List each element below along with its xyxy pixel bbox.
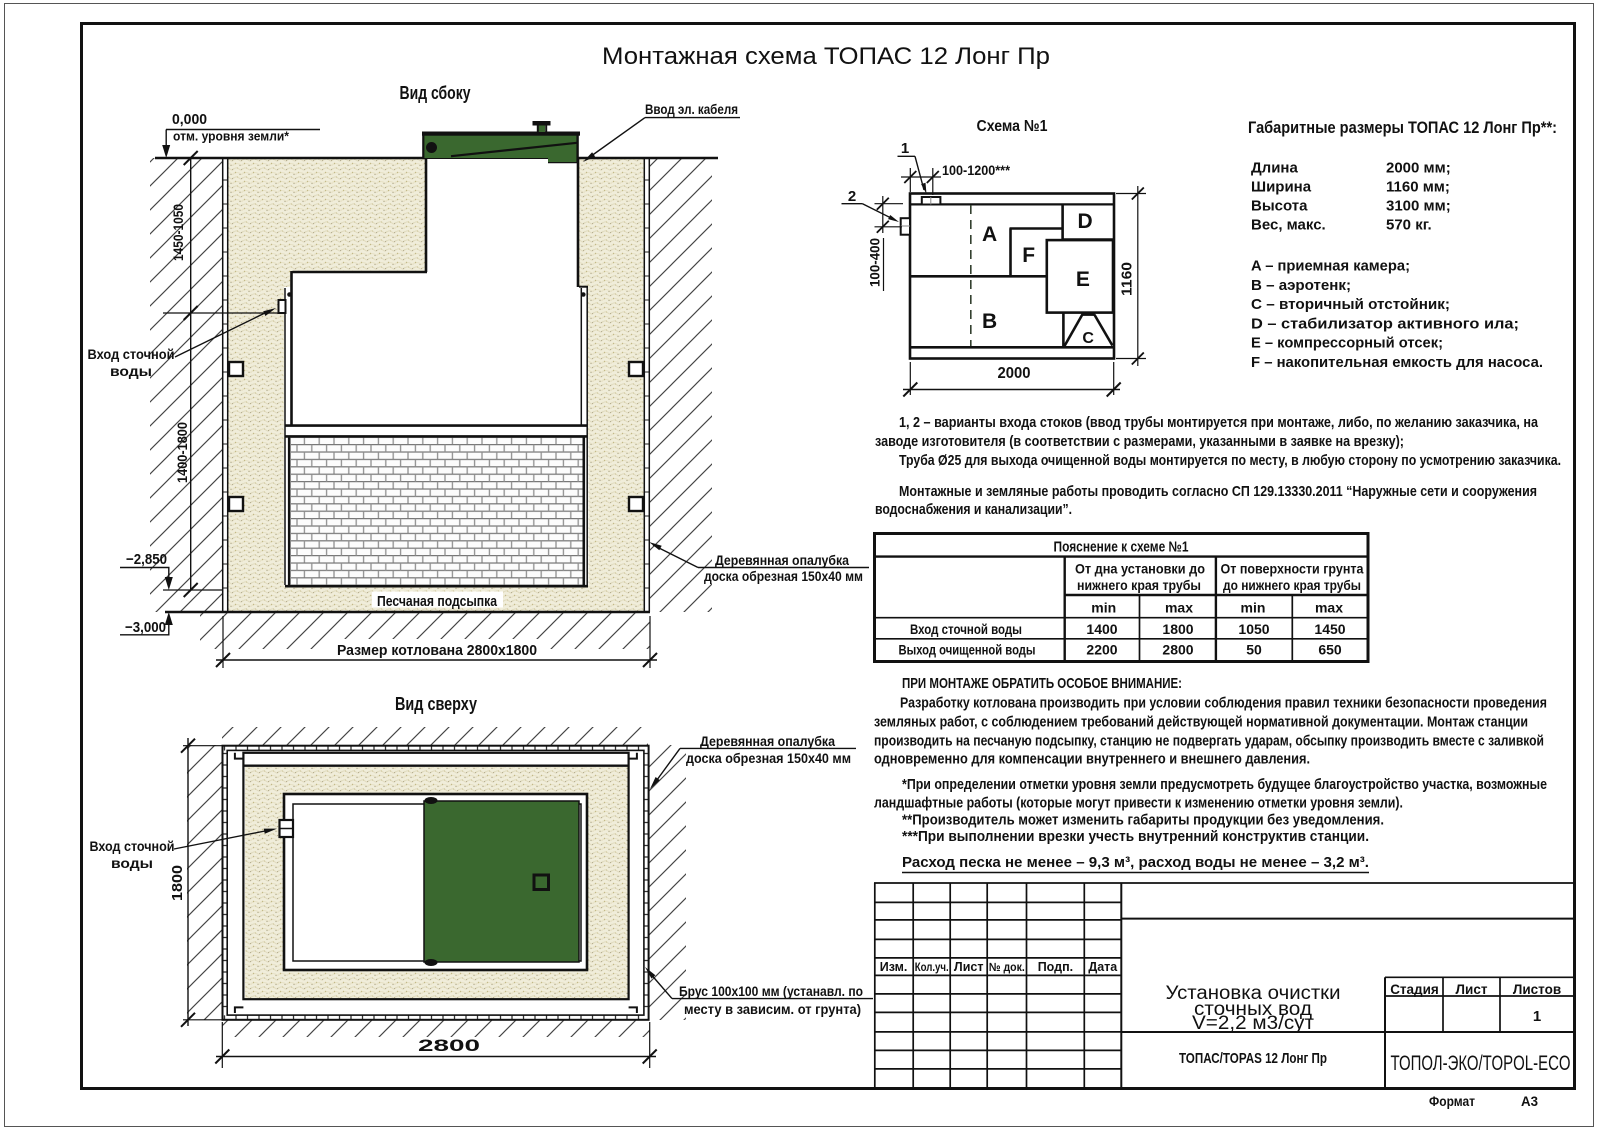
svg-text:*При определении отметки уровн: *При определении отметки уровня земли пр… [902,776,1547,793]
svg-text:2000: 2000 [998,365,1031,382]
svg-text:D – стабилизатор активного ила: D – стабилизатор активного ила; [1251,315,1519,332]
svg-text:2800: 2800 [1162,642,1193,658]
svg-text:Стадия: Стадия [1390,982,1439,997]
svg-text:Изм.: Изм. [880,960,908,974]
svg-text:1: 1 [901,140,909,157]
svg-text:Выход очищенной воды: Выход очищенной воды [899,642,1036,658]
svg-text:2000 мм;: 2000 мм; [1386,160,1451,177]
svg-text:Пояснение к схеме №1: Пояснение к схеме №1 [1054,540,1189,556]
svg-text:Разработку котлована производи: Разработку котлована производить при усл… [900,695,1547,712]
svg-text:A: A [982,223,997,246]
svg-text:2: 2 [848,188,856,205]
svg-text:Формат: Формат [1429,1093,1475,1109]
svg-text:одновременно для компенсации в: одновременно для компенсации внутреннего… [874,751,1310,768]
svg-text:−3,000: −3,000 [125,619,166,636]
svg-text:воды: воды [110,363,152,379]
svg-text:Длина: Длина [1251,160,1298,177]
svg-text:3100 мм;: 3100 мм; [1386,198,1451,215]
svg-text:A – приемная камера;: A – приемная камера; [1251,258,1410,275]
svg-text:C: C [1082,330,1094,347]
svg-text:2200: 2200 [1086,642,1117,658]
svg-text:ТОПАС/TOPAS 12 Лонг Пр: ТОПАС/TOPAS 12 Лонг Пр [1179,1050,1327,1067]
svg-text:Вес, макс.: Вес, макс. [1251,217,1326,234]
svg-text:ПРИ МОНТАЖЕ ОБРАТИТЬ ОСОБОЕ ВН: ПРИ МОНТАЖЕ ОБРАТИТЬ ОСОБОЕ ВНИМАНИЕ: [902,675,1182,692]
svg-text:***При выполнении врезки учест: ***При выполнении врезки учесть внутренн… [902,828,1369,845]
svg-text:1160 мм;: 1160 мм; [1386,179,1450,196]
svg-text:Вход сточной: Вход сточной [88,346,175,362]
svg-text:От поверхности грунта: От поверхности грунта [1221,561,1364,577]
svg-text:Деревянная опалубка: Деревянная опалубка [700,733,835,749]
svg-text:E – компрессорный отсек;: E – компрессорный отсек; [1251,335,1443,352]
svg-text:100-400: 100-400 [867,238,883,287]
svg-text:650: 650 [1318,642,1342,658]
svg-text:Вид сверху: Вид сверху [395,694,477,714]
svg-text:Ширина: Ширина [1251,179,1312,196]
svg-text:нижнего края трубы: нижнего края трубы [1077,577,1201,593]
svg-text:V=2,2 м3/сут: V=2,2 м3/сут [1192,1013,1314,1034]
svg-text:месту в зависим. от грунта): месту в зависим. от грунта) [684,1001,861,1017]
svg-text:А3: А3 [1521,1093,1538,1109]
svg-text:Лист: Лист [1456,982,1488,997]
svg-text:max: max [1315,600,1343,616]
svg-text:Размер котлована 2800х1800: Размер котлована 2800х1800 [337,642,537,659]
svg-text:водоснабжения и канализации”.: водоснабжения и канализации”. [875,501,1072,518]
svg-text:№ док.: № док. [989,960,1025,974]
svg-text:земляных работ, с соблюдением: земляных работ, с соблюдением требований… [874,714,1528,731]
svg-text:Высота: Высота [1251,198,1308,215]
svg-text:1450-1050: 1450-1050 [170,204,186,261]
svg-text:50: 50 [1246,642,1262,658]
svg-text:Ввод эл. кабеля: Ввод эл. кабеля [645,101,738,117]
svg-text:D: D [1078,210,1093,233]
svg-text:заводе изготовителя (в соответ: заводе изготовителя (в соответствии с ра… [875,433,1404,450]
svg-text:Вход сточной воды: Вход сточной воды [910,621,1022,637]
svg-text:1400-1800: 1400-1800 [174,422,190,483]
svg-text:2800: 2800 [418,1036,480,1055]
svg-text:1: 1 [1533,1008,1541,1025]
svg-text:Монтажная схема ТОПАС 12 Лонг: Монтажная схема ТОПАС 12 Лонг Пр [602,43,1050,70]
svg-text:отм. уровня земли*: отм. уровня земли* [173,129,290,144]
svg-text:100-1200***: 100-1200*** [942,162,1010,178]
svg-text:Брус 100х100 мм (устанавл. по: Брус 100х100 мм (устанавл. по [679,983,863,999]
svg-text:Дата: Дата [1088,960,1118,974]
svg-text:F: F [1022,244,1035,267]
svg-text:Лист: Лист [954,960,984,974]
svg-text:ТОПОЛ-ЭКО/TOPOL-ECO: ТОПОЛ-ЭКО/TOPOL-ECO [1391,1052,1571,1075]
svg-text:доска обрезная 150х40 мм: доска обрезная 150х40 мм [704,568,863,584]
svg-text:Кол.уч.: Кол.уч. [915,962,949,974]
svg-text:воды: воды [111,855,153,871]
svg-text:F – накопительная емкость для: F – накопительная емкость для насоса. [1251,354,1543,371]
svg-text:E: E [1076,268,1090,291]
svg-text:B: B [982,310,997,333]
svg-text:1, 2 – варианты входа стоков: 1, 2 – варианты входа стоков (ввод трубы… [899,414,1539,431]
svg-text:производить на песчаную подсып: производить на песчаную подсыпку, станци… [874,733,1544,750]
svg-text:1400: 1400 [1086,621,1117,637]
svg-text:1800: 1800 [1162,621,1193,637]
svg-text:1450: 1450 [1314,621,1345,637]
svg-text:Труба Ø25 для выхода очищенной: Труба Ø25 для выхода очищенной воды монт… [899,452,1561,469]
svg-text:C – вторичный отстойник;: C – вторичный отстойник; [1251,296,1450,313]
svg-text:Монтажные и земляные работы пр: Монтажные и земляные работы проводить со… [899,483,1537,500]
svg-text:570 кг.: 570 кг. [1386,217,1432,234]
svg-text:до нижнего края трубы: до нижнего края трубы [1223,577,1361,593]
svg-text:От дна установки до: От дна установки до [1075,561,1205,577]
svg-text:Схема №1: Схема №1 [977,118,1048,135]
svg-text:B – аэротенк;: B – аэротенк; [1251,277,1351,294]
svg-text:1050: 1050 [1238,621,1269,637]
svg-text:доска обрезная 150х40 мм: доска обрезная 150х40 мм [686,750,851,766]
svg-text:0,000: 0,000 [172,111,207,128]
svg-text:max: max [1165,600,1193,616]
svg-text:min: min [1091,600,1116,616]
svg-text:Подп.: Подп. [1038,960,1073,974]
svg-text:min: min [1241,600,1266,616]
svg-text:Деревянная опалубка: Деревянная опалубка [715,552,849,568]
svg-text:Листов: Листов [1513,982,1561,997]
svg-text:Вход сточной: Вход сточной [90,838,175,854]
svg-text:1800: 1800 [169,865,186,901]
svg-text:−2,850: −2,850 [126,551,167,568]
svg-text:Расход песка не менее – 9,3 м³: Расход песка не менее – 9,3 м³, расход в… [902,854,1369,871]
svg-text:ландшафтные работы (которые мо: ландшафтные работы (которые могут привес… [874,795,1403,812]
svg-text:1160: 1160 [1119,262,1136,296]
svg-text:Песчаная подсыпка: Песчаная подсыпка [377,593,498,610]
svg-text:Габаритные размеры ТОПАС 12 Ло: Габаритные размеры ТОПАС 12 Лонг Пр**: [1248,119,1557,137]
svg-text:**Производитель может изменить: **Производитель может изменить габариты … [902,812,1384,829]
svg-text:Вид сбоку: Вид сбоку [400,83,471,103]
